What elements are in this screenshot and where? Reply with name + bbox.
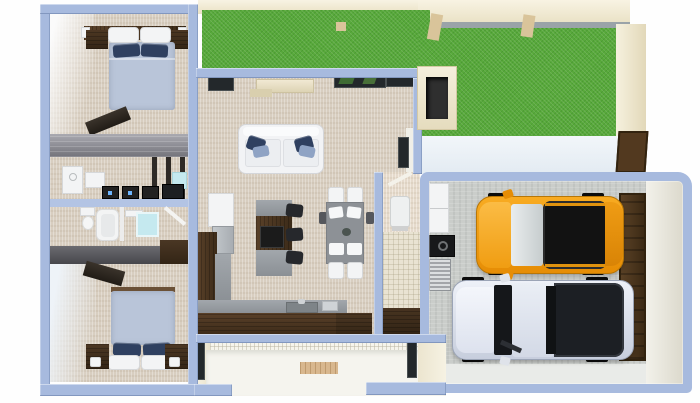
floor-plan-render bbox=[0, 0, 700, 403]
porch-frame-right bbox=[366, 382, 446, 395]
porch-frame-left bbox=[194, 384, 232, 396]
walls bbox=[0, 0, 700, 403]
chimney-flue bbox=[426, 77, 448, 119]
pantry-left-wall bbox=[374, 172, 383, 338]
chimney bbox=[417, 66, 457, 130]
outer-wall-left bbox=[40, 4, 50, 396]
living-top-wall bbox=[196, 68, 422, 78]
outer-wall-bottom-left bbox=[40, 384, 198, 396]
kitchen-bottom-wall bbox=[196, 334, 446, 343]
outer-wall-top-left bbox=[40, 4, 198, 14]
wall-bedroom-column-right bbox=[188, 4, 198, 386]
